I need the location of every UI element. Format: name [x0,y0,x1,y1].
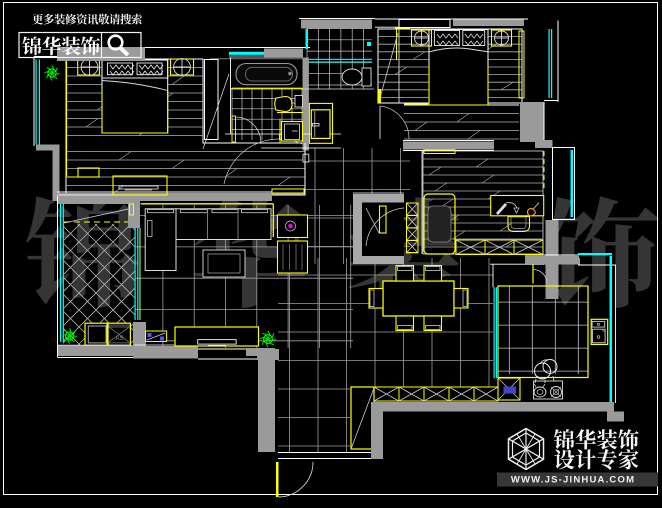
svg-text:AS: AS [116,336,124,342]
svg-text:WWW.JS-JINHUA.COM: WWW.JS-JINHUA.COM [511,475,635,486]
